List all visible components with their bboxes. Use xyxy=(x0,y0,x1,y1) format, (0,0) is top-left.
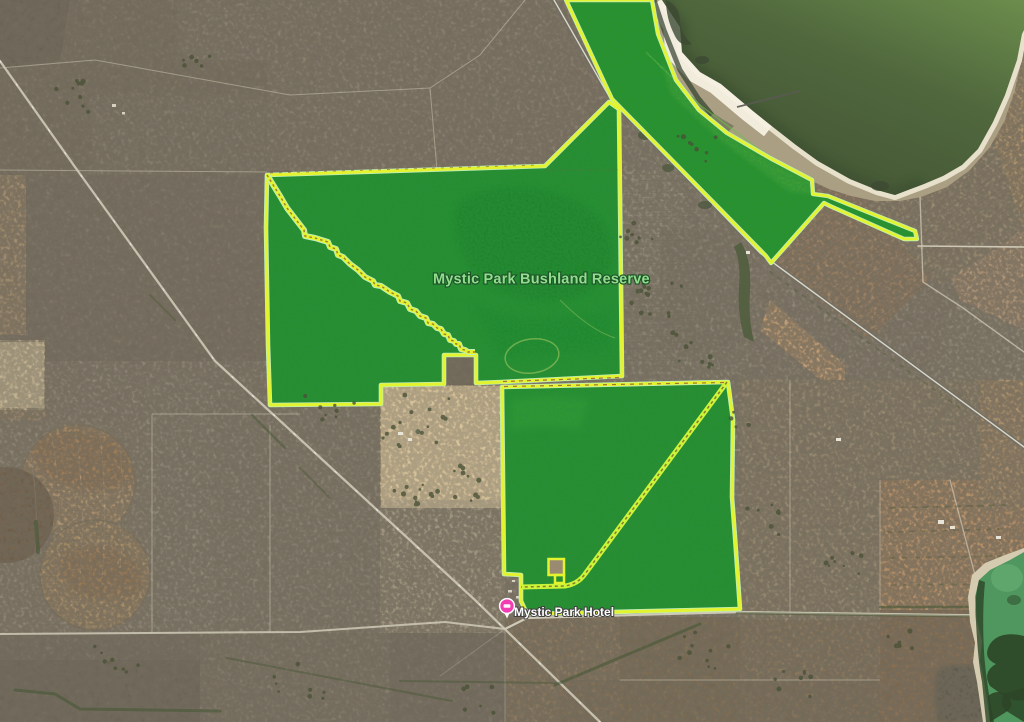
svg-text:Mystic Park Bushland Reserve: Mystic Park Bushland Reserve xyxy=(433,272,650,288)
svg-text:Mystic Park Hotel: Mystic Park Hotel xyxy=(514,605,614,619)
